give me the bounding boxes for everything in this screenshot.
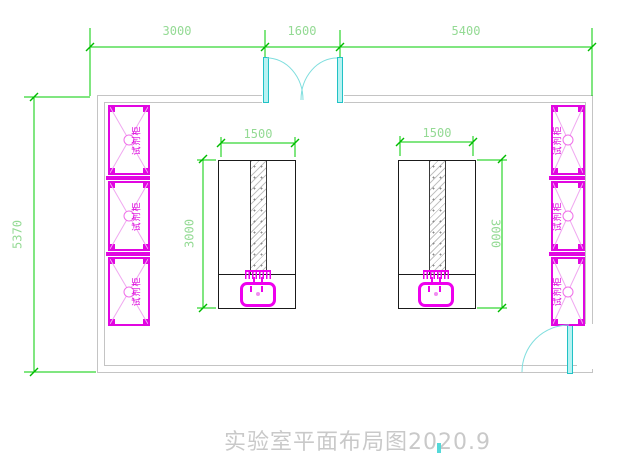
room-inner-wall: [104, 102, 586, 366]
faucet-icon: [439, 286, 441, 292]
left-dimension-lines: [24, 97, 96, 372]
cabinet-label: 试剂柜: [133, 272, 144, 312]
cursor-mark: [437, 443, 441, 453]
sink-icon: [240, 282, 276, 307]
drawing-title: 实验室平面布局图2020.9: [224, 424, 491, 456]
double-door-left-leaf: [263, 57, 269, 103]
cabinet-label: 试剂柜: [554, 197, 565, 237]
bench-service-channel: [429, 161, 446, 274]
faucet-icon: [428, 286, 430, 292]
dim-label-bench-left-depth: 3000: [183, 206, 198, 262]
bench-service-channel: [250, 161, 267, 274]
lab-bench-right: [398, 160, 476, 309]
sink-icon: [418, 282, 454, 307]
cabinet-label: 试剂柜: [554, 272, 565, 312]
sink-drain-icon: [434, 292, 438, 296]
dim-label-room-height: 5370: [11, 207, 26, 263]
floor-plan-canvas: 试剂柜 试剂柜 试剂柜 试剂柜 试剂柜: [0, 0, 619, 469]
dim-label-top-2: 1600: [274, 24, 330, 39]
cabinet-rail: [549, 176, 585, 180]
dim-label-bench-left-width: 1500: [230, 127, 286, 142]
reagent-cabinet-cell: 试剂柜: [551, 257, 585, 326]
cabinet-label: 试剂柜: [133, 121, 144, 161]
reagent-cabinet-cell: 试剂柜: [551, 105, 585, 175]
right-door-opening: [577, 324, 594, 369]
sink-drain-icon: [256, 292, 260, 296]
cabinet-rail: [106, 176, 150, 180]
dim-label-top-3: 5400: [438, 24, 494, 39]
drain-grate-icon: [423, 270, 449, 279]
reagent-cabinet-cell: 试剂柜: [108, 181, 150, 251]
faucet-icon: [250, 286, 252, 292]
single-door-leaf: [567, 325, 573, 374]
reagent-cabinet-cell: 试剂柜: [551, 181, 585, 251]
lab-bench-left: [218, 160, 296, 309]
dim-label-top-1: 3000: [149, 24, 205, 39]
cabinet-label: 试剂柜: [554, 121, 565, 161]
reagent-cabinet-cell: 试剂柜: [108, 105, 150, 175]
top-door-opening: [262, 93, 344, 106]
cabinet-rail: [549, 252, 585, 256]
double-door-right-leaf: [337, 57, 343, 103]
cabinet-rail: [106, 252, 150, 256]
drain-grate-icon: [245, 270, 271, 279]
dim-label-bench-right-depth: 3000: [488, 206, 503, 262]
cabinet-label: 试剂柜: [133, 197, 144, 237]
dim-label-bench-right-width: 1500: [409, 126, 465, 141]
reagent-cabinet-cell: 试剂柜: [108, 257, 150, 326]
faucet-icon: [261, 286, 263, 292]
